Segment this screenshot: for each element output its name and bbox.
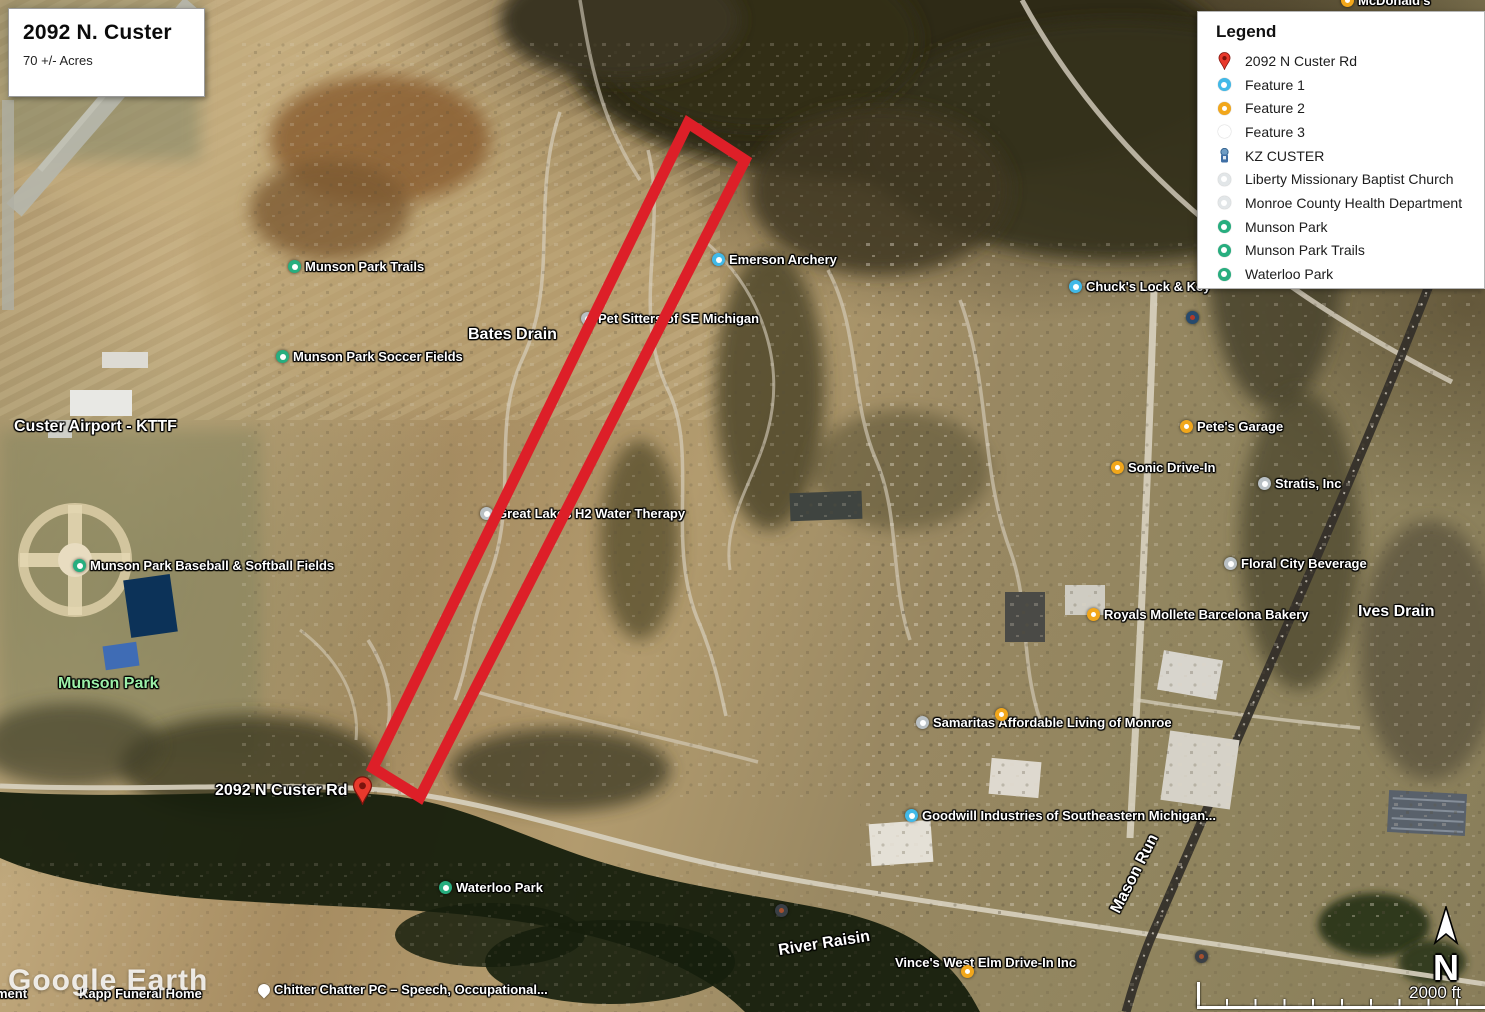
map-label-text: Munson Park Baseball & Softball Fields <box>90 559 334 572</box>
map-label[interactable]: Munson Park Soccer Fields <box>276 350 463 363</box>
map-label-text: Great Lakes H2 Water Therapy <box>497 507 685 520</box>
map-label-text: Stratis, Inc <box>1275 477 1341 490</box>
map-label-text: McDonald's <box>1358 0 1430 7</box>
map-canvas[interactable]: McDonald'sMunson Park TrailsChuck's Lock… <box>0 0 1485 1012</box>
page-title: 2092 N. Custer <box>23 21 190 45</box>
yellow-icon <box>1341 0 1354 7</box>
legend-item: Waterloo Park <box>1216 262 1484 286</box>
map-label: Vince's West Elm Drive-In Inc <box>895 956 1076 969</box>
map-label-text: Samaritas Affordable Living of Monroe <box>933 716 1172 729</box>
map-label[interactable]: Munson Park Baseball & Softball Fields <box>73 559 334 572</box>
map-label[interactable]: Munson Park Trails <box>288 260 424 273</box>
legend-item-label: Munson Park <box>1245 219 1327 235</box>
yellow-icon <box>995 708 1008 721</box>
green-icon <box>276 350 289 363</box>
map-label-text: Vince's West Elm Drive-In Inc <box>895 956 1076 969</box>
red-pin-icon <box>1218 52 1231 70</box>
map-label[interactable]: Floral City Beverage <box>1224 557 1367 570</box>
map-label-text: Goodwill Industries of Southeastern Mich… <box>922 809 1216 822</box>
scale-bar-line <box>1197 1006 1485 1009</box>
map-label-text: Royals Mollete Barcelona Bakery <box>1104 608 1308 621</box>
title-box: 2092 N. Custer 70 +/- Acres <box>8 8 205 97</box>
gray-icon <box>1218 125 1231 138</box>
cyan-icon <box>712 253 725 266</box>
yellow-icon <box>1111 461 1124 474</box>
legend-item: Munson Park <box>1216 215 1484 239</box>
green-icon <box>1218 268 1231 281</box>
green-icon <box>73 559 86 572</box>
dark-icon <box>1195 950 1208 963</box>
green-icon <box>288 260 301 273</box>
map-label[interactable]: Stratis, Inc <box>1258 477 1341 490</box>
map-label[interactable]: Chitter Chatter PC – Speech, Occupationa… <box>258 983 548 996</box>
green-icon <box>1218 220 1231 233</box>
legend-item-label: Feature 3 <box>1245 124 1305 140</box>
map-label-text: Ives Drain <box>1358 604 1434 620</box>
map-label-text: Sonic Drive-In <box>1128 461 1215 474</box>
map-label[interactable]: Pete's Garage <box>1180 420 1283 433</box>
north-arrow-icon <box>1423 906 1469 946</box>
north-arrow-letter: N <box>1422 947 1470 989</box>
map-label-text: River Raisin <box>777 929 871 959</box>
dark-icon <box>775 904 788 917</box>
map-label[interactable]: Emerson Archery <box>712 253 837 266</box>
cyan-icon <box>1069 280 1082 293</box>
legend-items: 2092 N Custer RdFeature 1Feature 2Featur… <box>1216 49 1484 286</box>
map-label-text: Chuck's Lock & Key <box>1086 280 1210 293</box>
map-label-text: 2092 N Custer Rd <box>215 783 348 799</box>
legend-item: Liberty Missionary Baptist Church <box>1216 167 1484 191</box>
map-label: River Raisin <box>777 929 871 959</box>
legend-item: 2092 N Custer Rd <box>1216 49 1484 73</box>
white-icon <box>480 507 493 520</box>
map-label-text: Emerson Archery <box>729 253 837 266</box>
map-label-text: Munson Park Soccer Fields <box>293 350 463 363</box>
map-label[interactable]: Goodwill Industries of Southeastern Mich… <box>905 809 1216 822</box>
legend-item: Monroe County Health Department <box>1216 191 1484 215</box>
legend-item-label: 2092 N Custer Rd <box>1245 53 1357 69</box>
map-label-text: Pete's Garage <box>1197 420 1283 433</box>
map-label[interactable]: Waterloo Park <box>439 881 543 894</box>
legend: Legend 2092 N Custer RdFeature 1Feature … <box>1197 11 1485 289</box>
legend-item: Feature 1 <box>1216 73 1484 97</box>
map-label: Custer Airport - KTTF <box>14 419 177 435</box>
white-icon <box>581 312 594 325</box>
legend-title: Legend <box>1216 22 1484 42</box>
legend-item: Munson Park Trails <box>1216 239 1484 263</box>
radio-tower-icon <box>1218 148 1231 164</box>
map-label-text: Mason Run <box>1108 832 1161 916</box>
map-marker[interactable] <box>1186 311 1199 324</box>
map-label-text: Pet Sitters of SE Michigan <box>598 312 759 325</box>
map-label[interactable]: Sonic Drive-In <box>1111 461 1215 474</box>
map-label-text: Munson Park <box>58 676 158 692</box>
map-marker[interactable] <box>961 965 974 978</box>
yellow-icon <box>1087 608 1100 621</box>
map-label[interactable]: Royals Mollete Barcelona Bakery <box>1087 608 1308 621</box>
red-pin-icon <box>352 776 373 805</box>
lgray-icon <box>1218 173 1231 186</box>
yellow-icon <box>1218 102 1231 115</box>
map-marker[interactable] <box>1195 950 1208 963</box>
map-marker[interactable] <box>775 904 788 917</box>
map-label-text: Bates Drain <box>468 327 557 343</box>
map-label[interactable]: Samaritas Affordable Living of Monroe <box>916 716 1172 729</box>
map-label[interactable]: Chuck's Lock & Key <box>1069 280 1210 293</box>
legend-item: Feature 2 <box>1216 96 1484 120</box>
green-icon <box>439 881 452 894</box>
legend-item-label: KZ CUSTER <box>1245 148 1324 164</box>
lgray-icon <box>1218 196 1231 209</box>
yellow-icon <box>1180 420 1193 433</box>
pin-white-icon <box>256 981 273 998</box>
map-label-text: Waterloo Park <box>456 881 543 894</box>
kz-icon <box>1186 311 1199 324</box>
acreage-subtitle: 70 +/- Acres <box>23 53 190 68</box>
map-label: Mason Run <box>1108 832 1161 916</box>
map-label: Munson Park <box>58 676 158 692</box>
map-label-text: Munson Park Trails <box>305 260 424 273</box>
green-icon <box>1218 244 1231 257</box>
map-label-text: Custer Airport - KTTF <box>14 419 177 435</box>
cyan-icon <box>1218 78 1231 91</box>
legend-item: KZ CUSTER <box>1216 144 1484 168</box>
north-arrow: N <box>1422 906 1470 989</box>
map-label: Ives Drain <box>1358 604 1434 620</box>
white-icon <box>916 716 929 729</box>
map-label-text: Floral City Beverage <box>1241 557 1367 570</box>
yellow-icon <box>961 965 974 978</box>
legend-item-label: Munson Park Trails <box>1245 242 1365 258</box>
legend-item-label: Liberty Missionary Baptist Church <box>1245 171 1454 187</box>
white-icon <box>1224 557 1237 570</box>
map-label[interactable]: Pet Sitters of SE Michigan <box>581 312 759 325</box>
legend-item-label: Monroe County Health Department <box>1245 195 1462 211</box>
map-label[interactable]: McDonald's <box>1341 0 1430 7</box>
map-label-text: Chitter Chatter PC – Speech, Occupationa… <box>274 983 548 996</box>
map-marker[interactable] <box>995 708 1008 721</box>
legend-item-label: Feature 2 <box>1245 100 1305 116</box>
google-earth-watermark: Google Earth <box>8 964 208 998</box>
map-label[interactable]: 2092 N Custer Rd <box>215 776 373 805</box>
legend-item-label: Feature 1 <box>1245 77 1305 93</box>
legend-item: Feature 3 <box>1216 120 1484 144</box>
map-label[interactable]: Great Lakes H2 Water Therapy <box>480 507 685 520</box>
map-label: Bates Drain <box>468 327 557 343</box>
cyan-icon <box>905 809 918 822</box>
legend-item-label: Waterloo Park <box>1245 266 1333 282</box>
white-icon <box>1258 477 1271 490</box>
